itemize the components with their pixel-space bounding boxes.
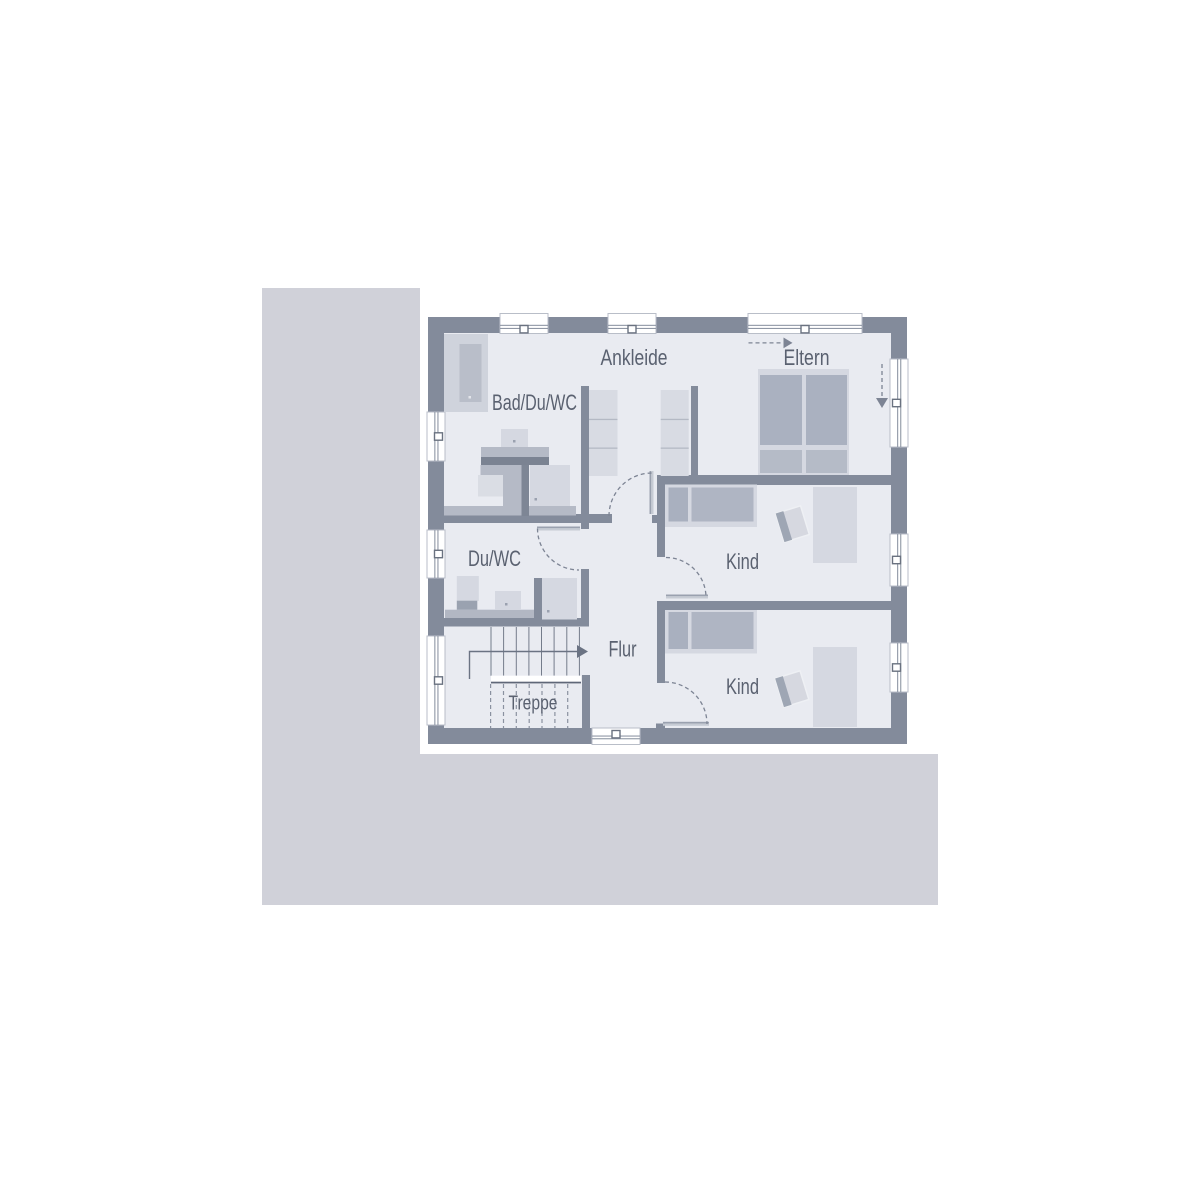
svg-text:Kind: Kind: [726, 549, 759, 574]
svg-text:Bad/Du/WC: Bad/Du/WC: [492, 390, 577, 415]
svg-text:Ankleide: Ankleide: [601, 345, 668, 370]
svg-text:Du/WC: Du/WC: [468, 546, 521, 571]
svg-text:Treppe: Treppe: [509, 693, 558, 715]
svg-text:Kind: Kind: [726, 674, 759, 699]
svg-text:Eltern: Eltern: [784, 345, 830, 370]
svg-text:Flur: Flur: [609, 637, 637, 662]
